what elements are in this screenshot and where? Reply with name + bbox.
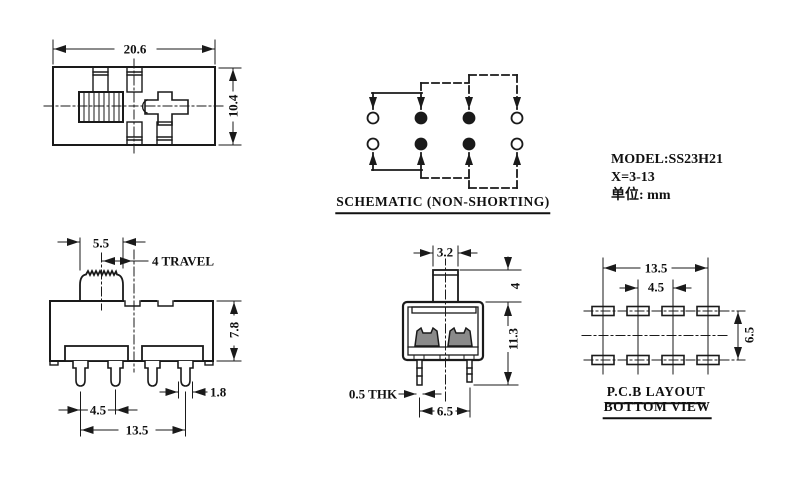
front-travel-dim: 4 TRAVEL [152, 255, 214, 268]
pcb-span-dim: 13.5 [643, 262, 670, 275]
side-pin-pitch-dim: 6.5 [435, 405, 455, 418]
top-view-drawing [44, 40, 241, 153]
side-knob-height-dim: 4 [509, 281, 522, 292]
front-pin-pitch-dim: 4.5 [88, 404, 108, 417]
pcb-pitch-dim: 4.5 [646, 281, 666, 294]
top-view-width-dim: 20.6 [122, 43, 149, 56]
technical-drawing-page: 20.6 10.4 SCHEMATIC (NON-SHORTING) MODEL… [0, 0, 800, 480]
side-height-dim: 11.3 [507, 326, 520, 352]
model-info-block: MODEL:SS23H21 X=3-13 单位: mm [611, 151, 723, 205]
front-body-height-dim: 7.8 [228, 320, 241, 340]
schematic-drawing [368, 75, 523, 188]
side-view-drawing [399, 246, 521, 417]
travel-range: X=3-13 [611, 169, 723, 187]
model-number: MODEL:SS23H21 [611, 151, 723, 169]
front-pin-span-dim: 13.5 [124, 424, 151, 437]
side-pin-thickness-dim: 0.5 THK [347, 388, 399, 401]
pcb-row-pitch-dim: 6.5 [743, 325, 756, 345]
unit-note: 单位: mm [611, 187, 723, 205]
top-view-height-dim: 10.4 [227, 93, 240, 120]
side-knob-width-dim: 3.2 [435, 246, 455, 259]
schematic-caption: SCHEMATIC (NON-SHORTING) [335, 194, 550, 214]
pcb-caption-line2: BOTTOM VIEW [603, 399, 712, 419]
front-pin-width-dim: 1.8 [210, 386, 226, 399]
front-knob-width-dim: 5.5 [91, 237, 111, 250]
